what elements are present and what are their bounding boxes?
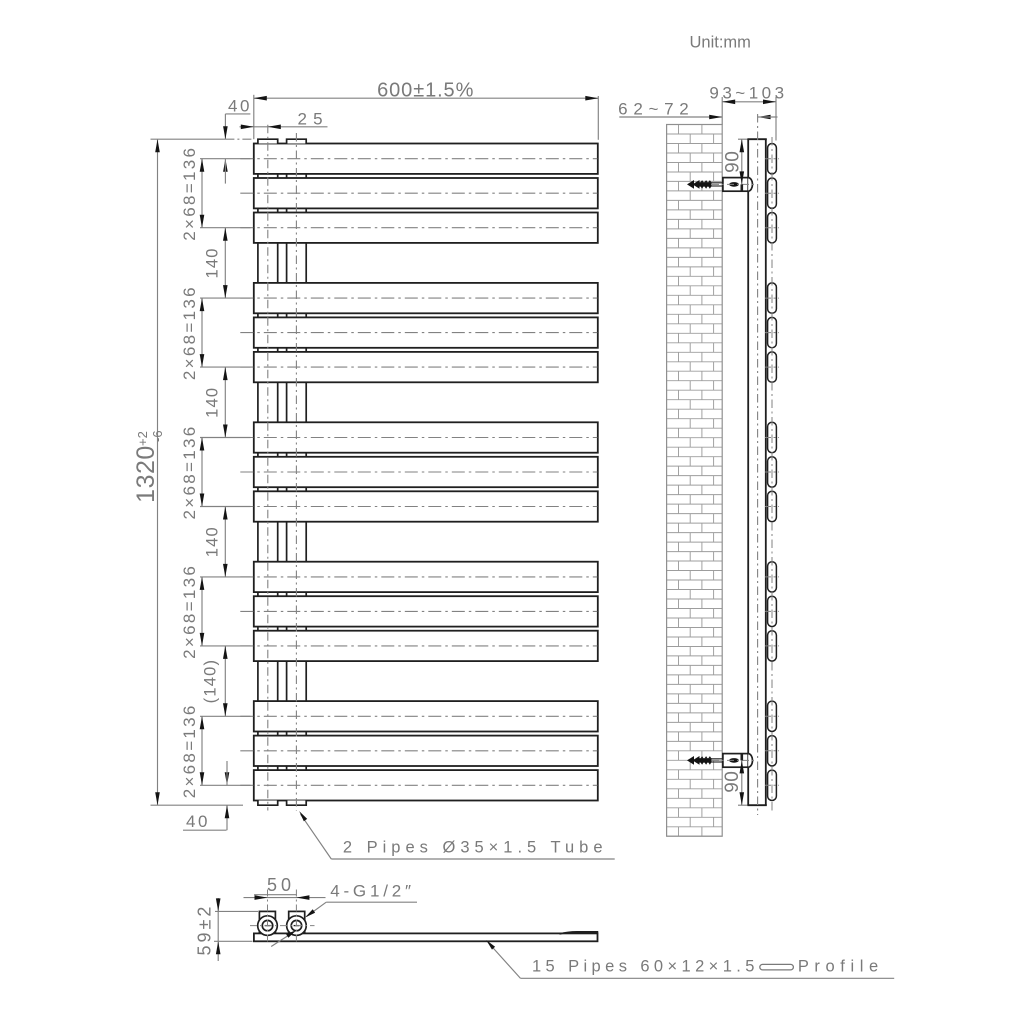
svg-text:Unit:mm: Unit:mm — [690, 34, 751, 52]
svg-text:-6: -6 — [150, 430, 165, 442]
svg-text:50: 50 — [267, 875, 295, 895]
svg-text:2×68=136: 2×68=136 — [180, 146, 199, 241]
svg-text:15 Pipes 60×12×1.5: 15 Pipes 60×12×1.5 — [532, 958, 759, 976]
svg-text:600±1.5%: 600±1.5% — [377, 80, 474, 102]
svg-text:4-G1/2″: 4-G1/2″ — [330, 882, 415, 901]
svg-text:25: 25 — [298, 109, 329, 128]
svg-text:+2: +2 — [135, 431, 150, 446]
svg-text:62~72: 62~72 — [618, 100, 694, 119]
svg-text:2×68=136: 2×68=136 — [180, 703, 199, 798]
svg-text:Profile: Profile — [798, 958, 884, 976]
svg-text:40: 40 — [186, 812, 210, 831]
svg-text:2 Pipes Ø35×1.5 Tube: 2 Pipes Ø35×1.5 Tube — [343, 839, 608, 857]
svg-text:59±2: 59±2 — [195, 904, 215, 956]
svg-text:(140): (140) — [202, 659, 220, 704]
svg-text:2×68=136: 2×68=136 — [180, 425, 199, 520]
svg-text:1320: 1320 — [132, 445, 160, 503]
svg-text:2×68=136: 2×68=136 — [180, 564, 199, 659]
svg-text:2×68=136: 2×68=136 — [180, 285, 199, 380]
svg-text:40: 40 — [228, 96, 252, 115]
svg-text:90: 90 — [723, 151, 744, 173]
svg-text:140: 140 — [204, 526, 222, 557]
svg-text:140: 140 — [204, 387, 222, 418]
svg-text:93~103: 93~103 — [709, 83, 787, 102]
svg-text:140: 140 — [204, 247, 222, 278]
svg-text:90: 90 — [722, 771, 743, 793]
